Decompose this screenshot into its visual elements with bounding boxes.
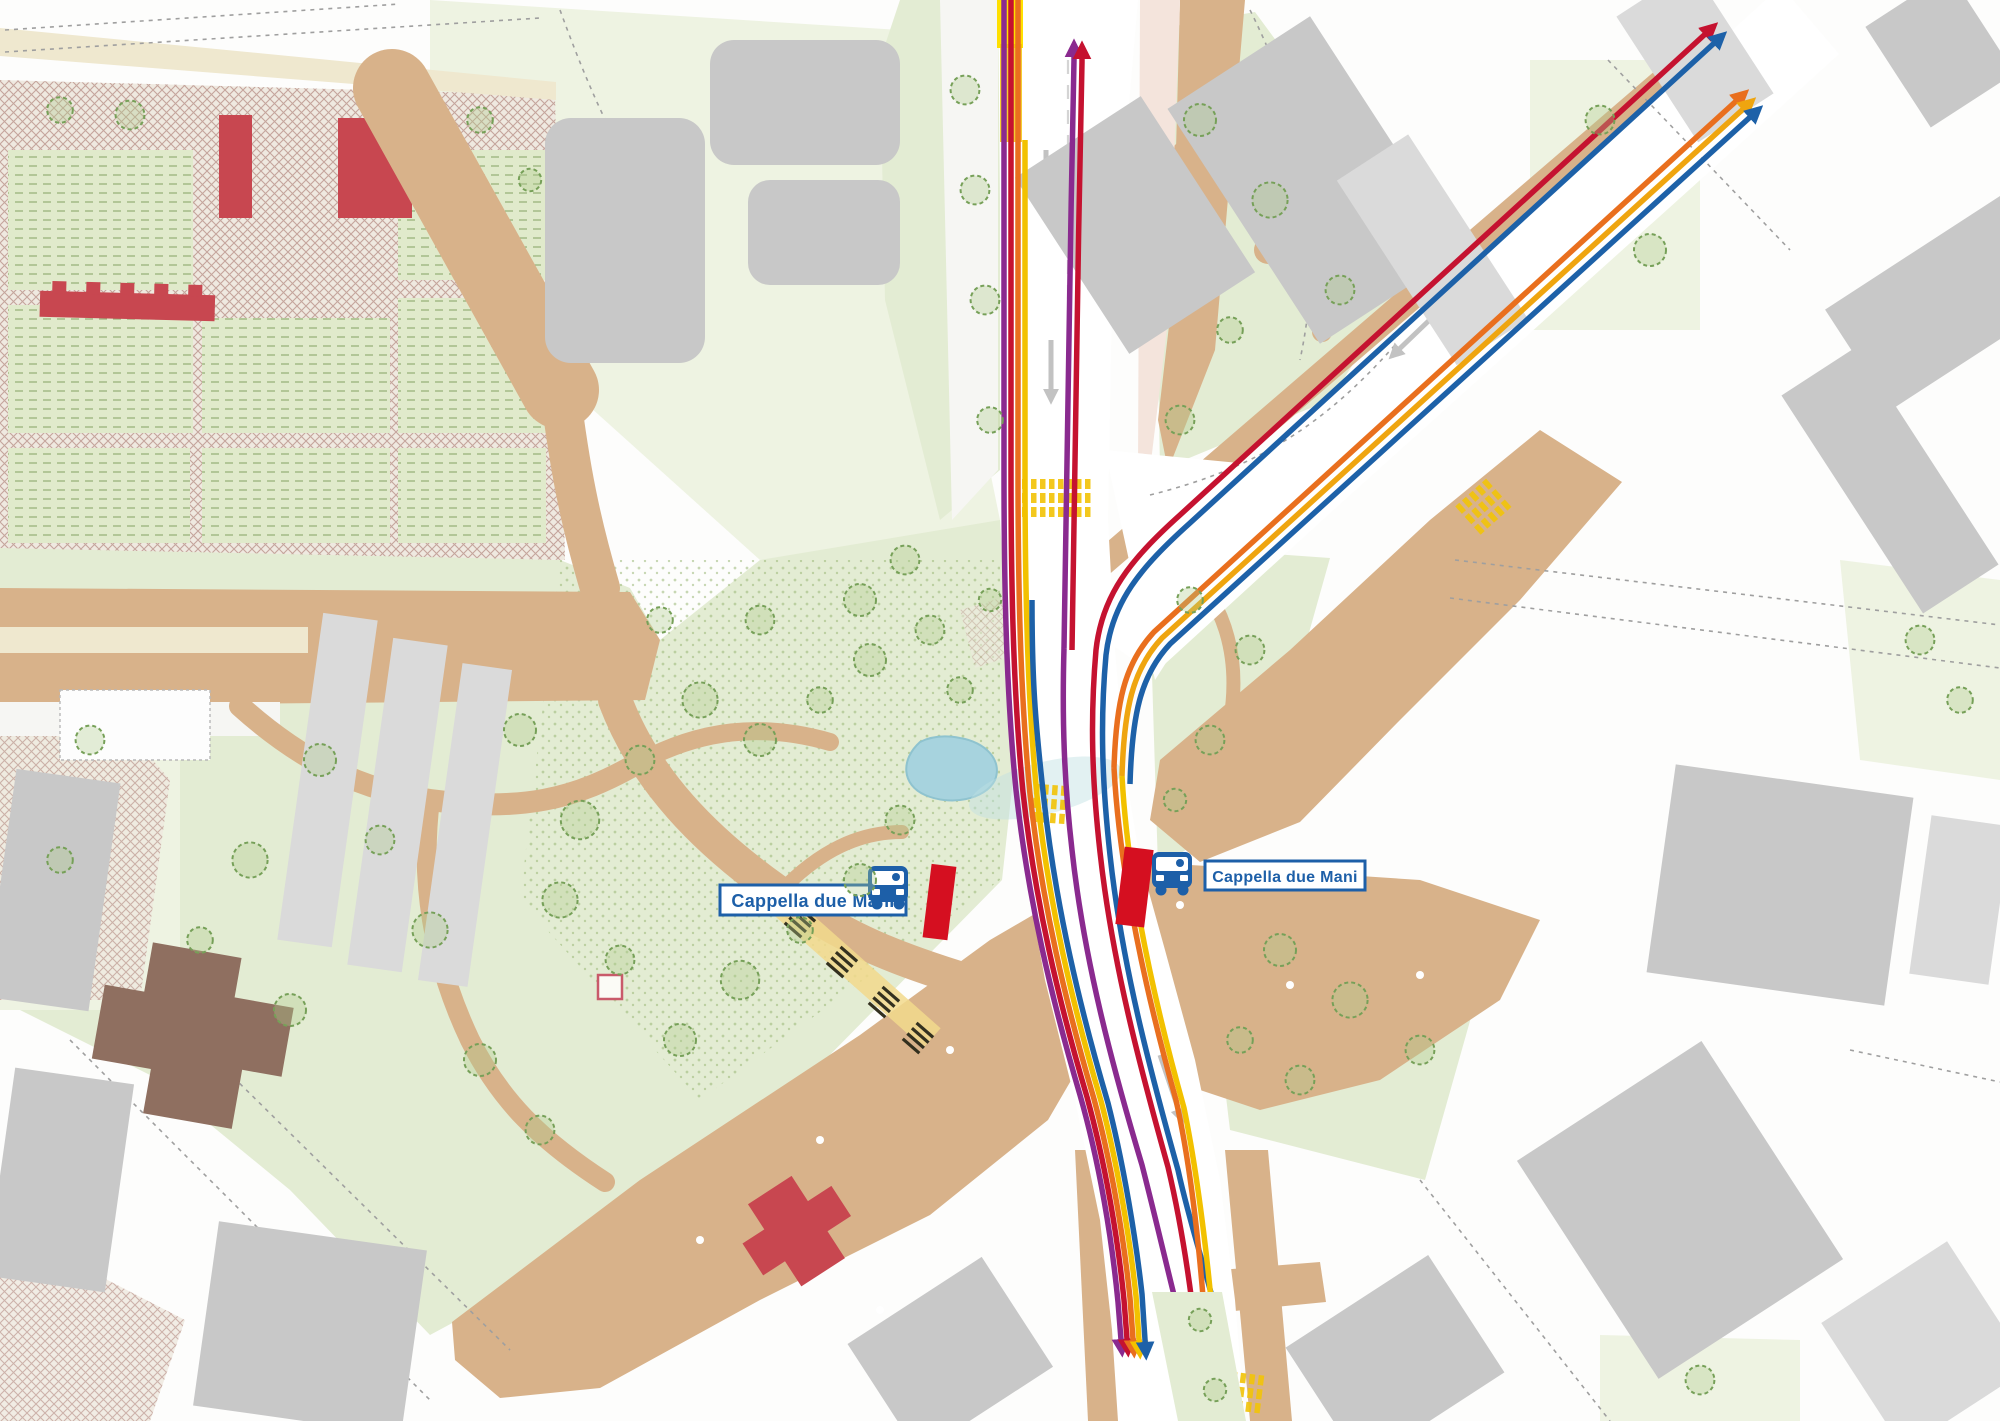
tree-icon (1686, 1366, 1715, 1395)
building (1909, 815, 2000, 985)
tree-icon (1204, 1379, 1226, 1401)
lamp (876, 1306, 884, 1314)
building (710, 40, 900, 165)
tree-icon (1586, 106, 1615, 135)
promenade-link (560, 390, 600, 588)
tree-icon (1947, 687, 1973, 713)
building (1821, 1241, 2000, 1421)
tree-icon (232, 842, 267, 877)
tree-icon (682, 682, 717, 717)
tooth (154, 284, 168, 296)
road-median (0, 627, 308, 653)
plot (8, 150, 193, 290)
tree-icon (854, 644, 886, 676)
tree-icon (844, 864, 876, 896)
tree-icon (519, 169, 541, 191)
zebra-stripe (1059, 814, 1065, 824)
tree-icon (1177, 587, 1203, 613)
tree-icon (721, 961, 759, 999)
tree-icon (606, 946, 635, 975)
tree-icon (744, 724, 776, 756)
tree-icon (467, 107, 493, 133)
crenellated-red-building (40, 281, 216, 322)
tree-icon (1332, 982, 1367, 1017)
tree-icon (76, 726, 105, 755)
tree-icon (916, 616, 945, 645)
park-pavilion-outline (598, 975, 622, 999)
zebra-stripe (1031, 507, 1037, 517)
tree-icon (1184, 104, 1216, 136)
tree-icon (844, 584, 876, 616)
lamp (1176, 901, 1184, 909)
zebra-stripe (1058, 493, 1064, 503)
zebra-stripe (1040, 507, 1046, 517)
zebra-stripe (1031, 479, 1037, 489)
zebra-stripe (1040, 493, 1046, 503)
building (545, 118, 705, 363)
tree-icon (504, 714, 536, 746)
lamp (1286, 981, 1294, 989)
building (0, 1068, 134, 1293)
lamp (696, 1236, 704, 1244)
tree-icon (1166, 406, 1195, 435)
site-plan-map: Cappella due Mani Cappella due Mani (0, 0, 2000, 1421)
tree-icon (886, 806, 915, 835)
tree-icon (1264, 934, 1296, 966)
building (193, 1221, 427, 1421)
plot (8, 448, 190, 543)
tree-icon (412, 912, 447, 947)
tree-icon (366, 826, 395, 855)
zebra-stripe (1031, 493, 1037, 503)
red-building-1 (219, 115, 252, 218)
tree-icon (304, 744, 336, 776)
building (848, 1257, 1054, 1421)
tree-icon (187, 927, 213, 953)
tooth (188, 285, 202, 297)
zebra-stripe (1052, 785, 1058, 795)
tree-icon (1227, 1027, 1253, 1053)
tree-icon (47, 847, 73, 873)
tree-icon (951, 76, 980, 105)
tree-icon (1217, 317, 1243, 343)
tree-icon (1236, 636, 1265, 665)
tree-icon (807, 687, 833, 713)
zebra-stripe (1085, 479, 1091, 489)
tree-icon (891, 546, 920, 575)
tree-icon (274, 994, 306, 1026)
zebra-stripe (1049, 507, 1055, 517)
zebra-stripe (1049, 493, 1055, 503)
tooth (86, 282, 100, 294)
lamp (946, 1046, 954, 1054)
tree-icon (1164, 789, 1186, 811)
tree-icon (1634, 234, 1666, 266)
building (1865, 0, 2000, 128)
tree-icon (787, 917, 813, 943)
tree-icon (47, 97, 73, 123)
zebra-stripe (1058, 479, 1064, 489)
tree-icon (979, 589, 1001, 611)
plot (8, 305, 193, 433)
lamp (816, 1136, 824, 1144)
zebra-stripe (1040, 479, 1046, 489)
plot (202, 318, 390, 433)
zebra-stripe (1085, 493, 1091, 503)
tree-icon (626, 746, 655, 775)
tree-icon (1286, 1066, 1315, 1095)
zebra-stripe (1085, 507, 1091, 517)
lamp (1416, 971, 1424, 979)
tree-icon (561, 801, 599, 839)
tree-icon (464, 1044, 496, 1076)
building (748, 180, 900, 285)
tree-icon (1196, 726, 1225, 755)
tree-icon (647, 607, 673, 633)
tree-icon (526, 1116, 555, 1145)
tree-icon (542, 882, 577, 917)
tree-icon (664, 1024, 696, 1056)
building (1647, 764, 1914, 1005)
zebra-stripe (1058, 507, 1064, 517)
tree-icon (1326, 276, 1355, 305)
zebra-stripe (1049, 479, 1055, 489)
tree-icon (1406, 1036, 1435, 1065)
tree-icon (1189, 1309, 1211, 1331)
stop-label-east: Cappella due Mani (1212, 869, 1358, 886)
building (1517, 1041, 1843, 1379)
tooth (120, 283, 134, 295)
map-canvas: Cappella due Mani Cappella due Mani (0, 0, 2000, 1421)
tree-icon (947, 677, 973, 703)
tree-icon (1906, 626, 1935, 655)
zebra-stripe (1051, 799, 1057, 809)
plot (398, 448, 546, 543)
tree-icon (116, 101, 145, 130)
plot (202, 448, 390, 543)
tooth (52, 281, 66, 293)
top-edge-road (5, 4, 400, 30)
zebra-stripe (1050, 813, 1056, 823)
tree-icon (746, 606, 775, 635)
tree-icon (961, 176, 990, 205)
tree-icon (1252, 182, 1287, 217)
tree-icon (977, 407, 1003, 433)
minor-road (1850, 1050, 2000, 1082)
tree-icon (971, 286, 1000, 315)
